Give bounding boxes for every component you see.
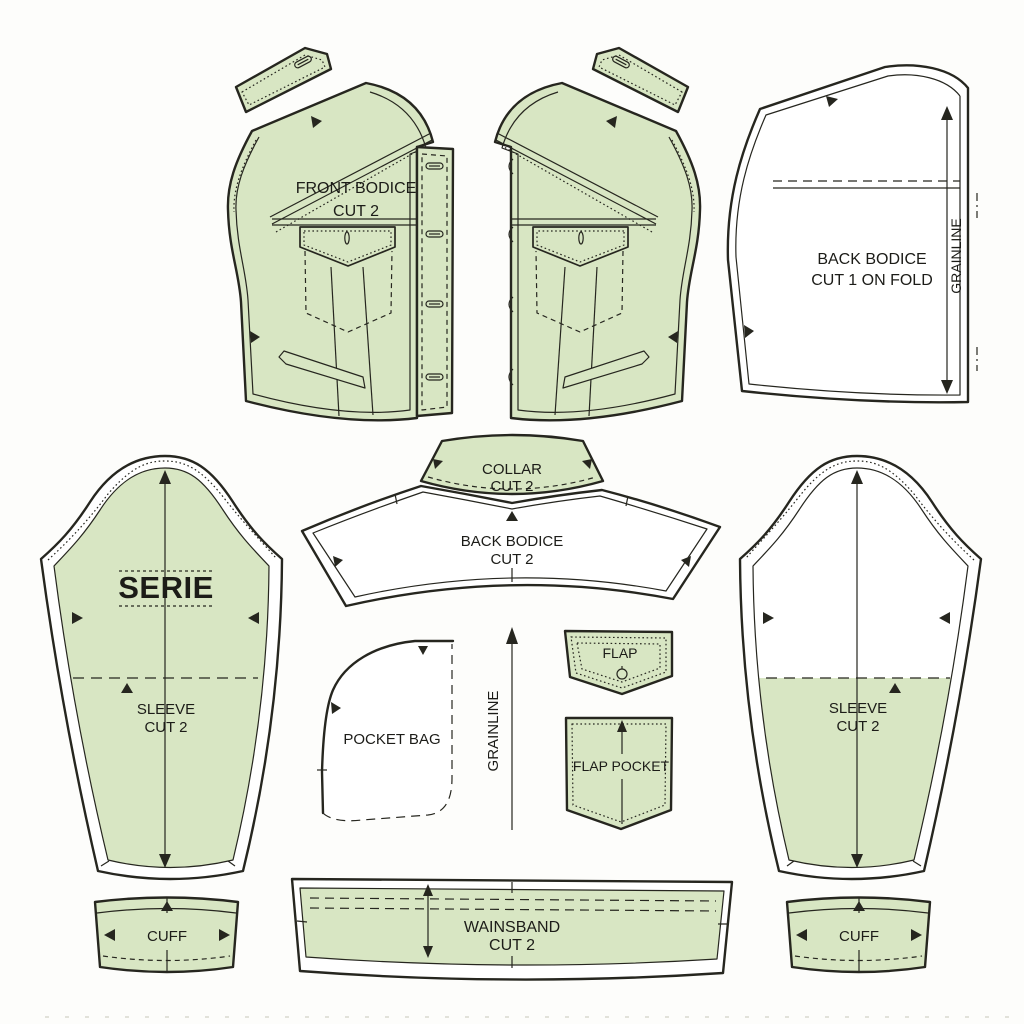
collar-piece: COLLAR CUT 2: [421, 435, 603, 495]
flap-pocket-piece: FLAP POCKET: [566, 718, 672, 829]
front-bodice-left-piece: FRONT BODICE CUT 2: [228, 83, 453, 420]
grainline-arrow-icon: [506, 627, 518, 830]
cuff-right-label: CUFF: [839, 928, 879, 945]
serie-stamp: SERIE: [118, 570, 214, 605]
back-yoke-cut-label: CUT 2: [490, 551, 533, 568]
front-bodice-label: FRONT BODICE: [296, 180, 417, 197]
sleeve-left-cut-label: CUT 2: [144, 719, 187, 736]
sleeve-left-label: SLEEVE: [137, 701, 195, 718]
front-bodice-right-piece: [495, 83, 700, 420]
waistband-piece: WAINSBAND CUT 2: [292, 879, 732, 980]
grainline-text: GRAINLINE: [948, 218, 964, 293]
waistband-cut-label: CUT 2: [489, 937, 535, 954]
pattern-sheet: FRONT BODICE CUT 2 BACK BODICE CUT 1 ON …: [0, 0, 1024, 1024]
sleeve-right-label: SLEEVE: [829, 700, 887, 717]
pattern-sheet-svg: FRONT BODICE CUT 2 BACK BODICE CUT 1 ON …: [0, 0, 1024, 1024]
front-bodice-cut-label: CUT 2: [333, 203, 379, 220]
collar-cut-label: CUT 2: [490, 478, 533, 495]
back-bodice-fold-cut-label: CUT 1 ON FOLD: [811, 272, 933, 289]
pocket-bag-piece: POCKET BAG: [317, 641, 453, 821]
collar-label: COLLAR: [482, 461, 542, 478]
sleeve-right-piece: SLEEVE CUT 2: [740, 456, 981, 879]
waistband-label: WAINSBAND: [464, 919, 560, 936]
cuff-left-label: CUFF: [147, 928, 187, 945]
back-bodice-fold-label: BACK BODICE: [817, 251, 926, 268]
center-grainline: GRAINLINE: [485, 627, 518, 830]
sleeve-right-cut-label: CUT 2: [836, 718, 879, 735]
cuff-right-piece: CUFF: [787, 897, 930, 972]
back-yoke-label: BACK BODICE: [461, 533, 564, 550]
pocket-bag-label: POCKET BAG: [343, 731, 440, 748]
flap-pocket-label: FLAP POCKET: [573, 758, 670, 774]
button-placket: [417, 147, 453, 416]
back-bodice-fold-piece: BACK BODICE CUT 1 ON FOLD GRAINLINE: [728, 65, 977, 402]
flap-label: FLAP: [602, 645, 637, 661]
flap-piece: FLAP: [565, 631, 672, 694]
back-yoke-piece: BACK BODICE CUT 2: [302, 486, 720, 606]
sleeve-left-piece: SERIE SLEEVE CUT 2: [41, 456, 282, 879]
grainline-text: GRAINLINE: [485, 691, 502, 772]
epaulette-left-piece: [236, 48, 331, 112]
cuff-left-piece: CUFF: [95, 897, 238, 972]
